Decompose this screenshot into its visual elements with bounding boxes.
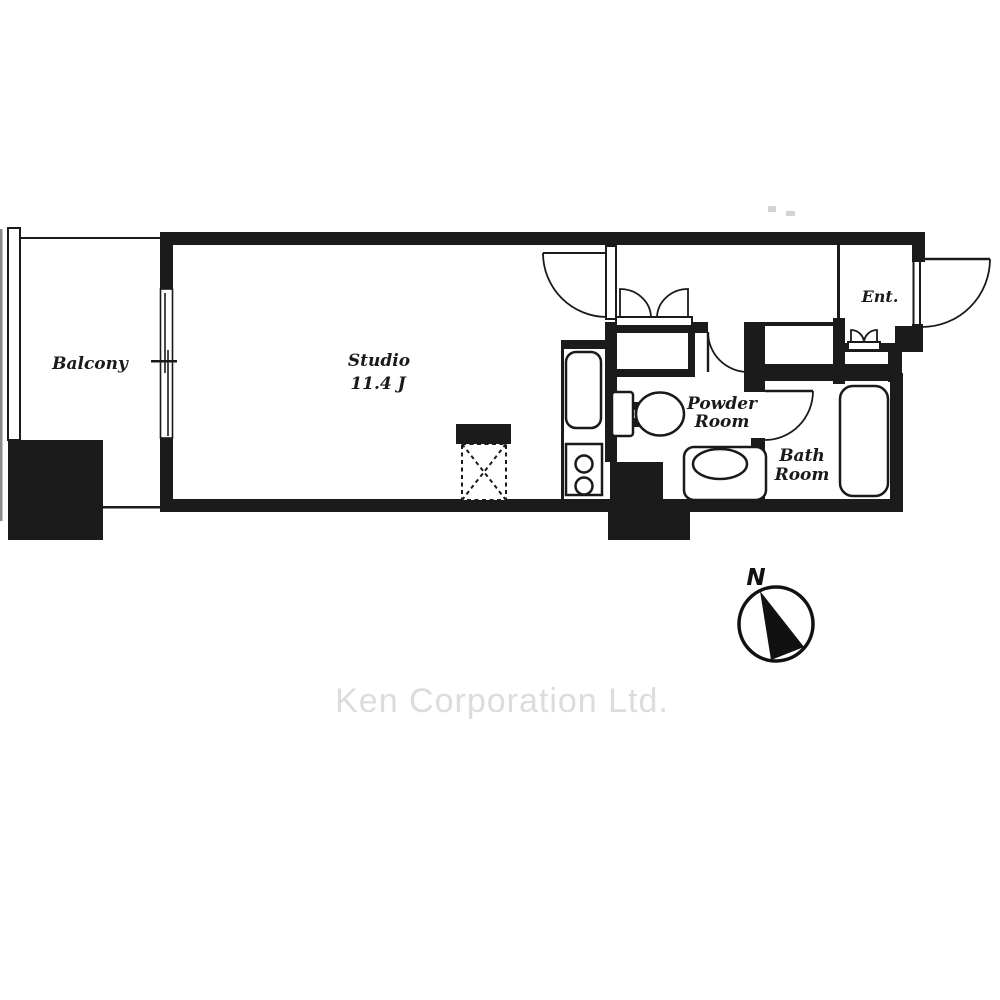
closet-interior [617, 333, 688, 369]
shoe-threshold [848, 342, 880, 350]
closet-bifold-left [620, 289, 651, 318]
wall-corner-block [895, 326, 923, 352]
niche-top-line [765, 322, 835, 326]
toilet-tank-icon [612, 392, 633, 436]
balcony-window [151, 289, 177, 438]
wall-top [163, 232, 925, 245]
wall-step [888, 350, 902, 382]
studio-area-label: 11.4 J [350, 374, 406, 394]
wall-bath-top [748, 364, 893, 381]
washbasin-bowl-icon [693, 449, 747, 479]
floorplan-page: N Balcony Studio 11.4 J Powder Room Bath… [0, 0, 1000, 1000]
wall-top-right-corner [912, 232, 925, 262]
closet-threshold [616, 317, 692, 326]
entrance-step-line [837, 245, 840, 320]
closet-bifold-right [657, 289, 688, 318]
compass-north-label: N [746, 565, 765, 591]
scan-edge-artifact [0, 229, 3, 521]
balcony-top-line [20, 237, 163, 239]
stove-burner-icon [576, 478, 593, 495]
toilet-bowl-icon [636, 393, 684, 436]
compass: N [739, 565, 813, 661]
pipe-shaft-block-lower [608, 499, 690, 540]
bathtub-icon [840, 386, 888, 496]
studio-door-header-line [543, 252, 607, 254]
kitchen-counter-edge [561, 340, 564, 500]
balcony-bottom-line [103, 506, 163, 509]
floorplan-drawing: N Balcony Studio 11.4 J Powder Room Bath… [0, 0, 1000, 1000]
powder-door-arc [708, 332, 748, 372]
scan-speck [768, 206, 776, 212]
scan-speck [786, 211, 795, 216]
studio-door-leaf [606, 246, 616, 319]
powder-room-label-line1: Powder [686, 394, 758, 414]
bath-room-label-line2: Room [774, 465, 830, 485]
studio-door-arc [543, 253, 607, 317]
wall-left-upper [160, 232, 173, 290]
entrance-door-arc [922, 259, 990, 327]
powder-room-label-line2: Room [694, 412, 750, 432]
compass-needle-icon [760, 591, 804, 660]
pipe-shaft-block-upper [610, 462, 663, 500]
bath-door-arc [765, 391, 813, 440]
kitchen-counter-top-wall [563, 340, 607, 349]
balcony-railing [8, 228, 20, 440]
window-frame [161, 289, 173, 438]
wall-bottom-studio [160, 499, 610, 512]
balcony-label: Balcony [51, 354, 129, 374]
balcony-block [8, 440, 103, 540]
bath-room-label-line1: Bath [778, 446, 825, 466]
entrance-label: Ent. [861, 287, 899, 306]
closet-cap-block [456, 424, 511, 444]
kitchen-sink-icon [566, 352, 601, 428]
window-center-tick [151, 360, 177, 363]
wall-entrance-left [833, 318, 845, 384]
watermark-text: Ken Corporation Ltd. [335, 682, 669, 720]
wall-powder-bath-divider-upper [744, 322, 765, 392]
wall-bath-right [890, 373, 903, 512]
stove-burner-icon [576, 456, 593, 473]
studio-label: Studio [348, 351, 410, 371]
